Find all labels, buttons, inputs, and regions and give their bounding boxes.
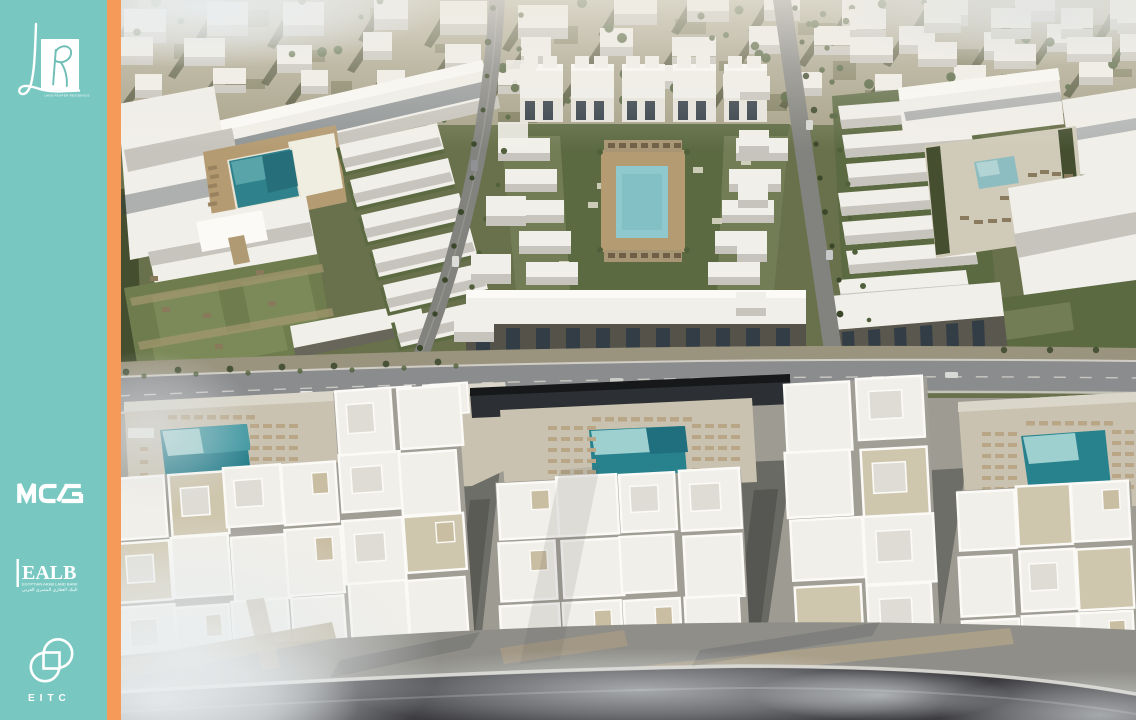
- svg-text:EITC: EITC: [28, 693, 71, 704]
